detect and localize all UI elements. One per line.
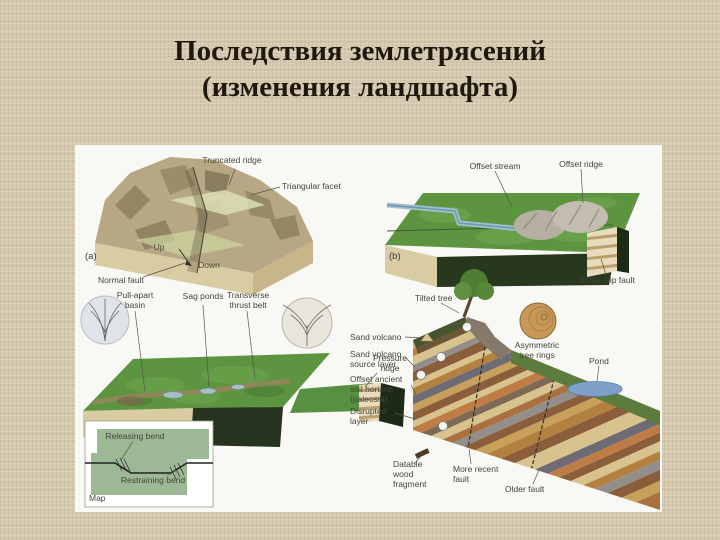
pond-shape xyxy=(568,382,622,397)
label-releasing-bend: Releasing bend xyxy=(103,432,167,442)
slide-title-line1: Последствия землетрясений xyxy=(0,34,720,70)
slide-title: Последствия землетрясений (изменения лан… xyxy=(0,34,720,106)
label-offset-paleosol: Offset ancient soil horizon (paleosol) xyxy=(350,375,414,404)
label-strike-slip-fault: Strike-slip fault xyxy=(565,276,649,286)
label-sand-volcano: Sand volcano xyxy=(350,333,408,343)
label-transverse-thrust-belt: Transverse thrust belt xyxy=(217,291,279,311)
label-pull-apart-basin: Pull-apart basin xyxy=(109,291,161,311)
label-tilted-tree: Tilted tree xyxy=(415,294,463,304)
fault-plane-b xyxy=(583,227,629,277)
label-asymmetric-tree-rings: Asymmetric tree rings xyxy=(509,341,565,361)
wood-fragment-shape xyxy=(415,448,430,458)
tree-rings-icon xyxy=(520,303,556,339)
label-down: Down xyxy=(193,261,225,271)
label-truncated-ridge: Truncated ridge xyxy=(192,156,272,166)
label-triangular-facet: Triangular facet xyxy=(282,182,362,192)
figure-panel: Truncated ridge Triangular facet Up Down… xyxy=(75,145,662,512)
label-restraining-bend: Restraining bend xyxy=(117,476,189,486)
label-normal-fault: Normal fault xyxy=(98,276,162,286)
panel-b-tag: (b) xyxy=(389,252,401,263)
flower-structure-right-icon xyxy=(282,298,332,348)
label-more-recent-fault: More recent fault xyxy=(453,465,505,485)
label-older-fault: Older fault xyxy=(505,485,559,495)
block-b-strike-slip-fault xyxy=(385,193,640,287)
label-pond: Pond xyxy=(589,357,619,367)
figure-artwork xyxy=(75,145,662,512)
pull-apart-basin-shape xyxy=(117,397,143,406)
label-offset-stream: Offset stream xyxy=(457,162,533,172)
label-disrupted-layer: Disrupted layer xyxy=(350,407,396,427)
slide-title-line2: (изменения ландшафта) xyxy=(0,70,720,106)
label-datable-wood-fragment: Datable wood fragment xyxy=(393,460,443,489)
panel-a-tag: (a) xyxy=(85,252,97,263)
slide-background: Последствия землетрясений (изменения лан… xyxy=(0,0,720,540)
label-offset-ridge: Offset ridge xyxy=(545,160,617,170)
label-map-caption: Map xyxy=(89,494,106,504)
label-sand-volcano-source-layer: Sand volcano source layer xyxy=(350,350,406,370)
label-up: Up xyxy=(149,243,169,253)
